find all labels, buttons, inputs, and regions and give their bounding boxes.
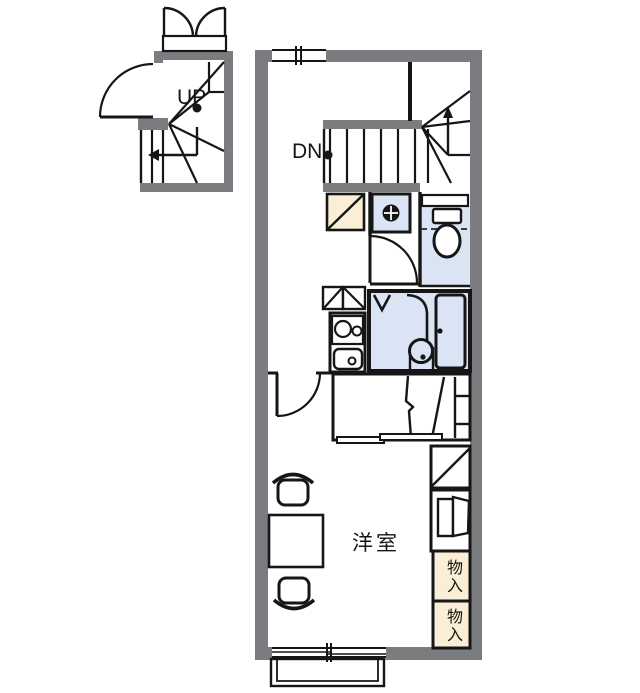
wash-basin <box>410 340 433 363</box>
door-knob <box>437 328 442 333</box>
sliding-door-track <box>337 437 384 443</box>
arrow-head <box>443 106 453 118</box>
table <box>269 515 323 567</box>
window-top <box>272 46 326 65</box>
wall <box>154 51 163 63</box>
dining-set <box>269 475 323 609</box>
floor-plan-drawing <box>0 0 640 693</box>
toilet-window <box>422 195 468 206</box>
toilet-bowl <box>434 225 460 257</box>
chair-seat <box>278 480 308 505</box>
toilet-tank <box>433 209 461 223</box>
cabinet-door-open <box>453 497 469 536</box>
wall-left <box>255 50 268 660</box>
kitchen <box>323 287 365 372</box>
wall-stair-lower <box>323 183 420 192</box>
cabinet-door <box>438 499 453 536</box>
wall-stair-upper <box>323 120 422 129</box>
sliding-door-track <box>380 434 442 440</box>
stove-burner <box>353 327 362 336</box>
wall-door-stub <box>138 118 168 130</box>
entrance-stairwell-1f <box>100 8 233 192</box>
washing-machine-pan <box>372 194 410 232</box>
floor-plan: UP DN 洋室 物入 物入 <box>0 0 640 693</box>
stove-burner <box>335 321 351 337</box>
arrow-head <box>148 149 159 161</box>
entry-door <box>100 64 153 117</box>
balcony <box>271 659 384 686</box>
wall <box>140 183 233 192</box>
storage-label-top: 物入 <box>444 559 460 595</box>
dn-start-dot <box>324 151 333 160</box>
wall <box>224 51 233 192</box>
wall <box>154 51 233 60</box>
bathroom <box>369 291 470 371</box>
chair-seat <box>279 578 309 603</box>
up-label: UP <box>177 86 206 110</box>
room-door <box>268 373 334 416</box>
entrance-double-door <box>163 8 226 51</box>
storage-label-bottom: 物入 <box>444 608 460 644</box>
down-label: DN <box>292 140 322 164</box>
refrigerator-space <box>327 194 364 230</box>
western-room-label: 洋室 <box>352 527 400 557</box>
sink-drain <box>349 358 356 365</box>
closet-block <box>333 374 470 443</box>
